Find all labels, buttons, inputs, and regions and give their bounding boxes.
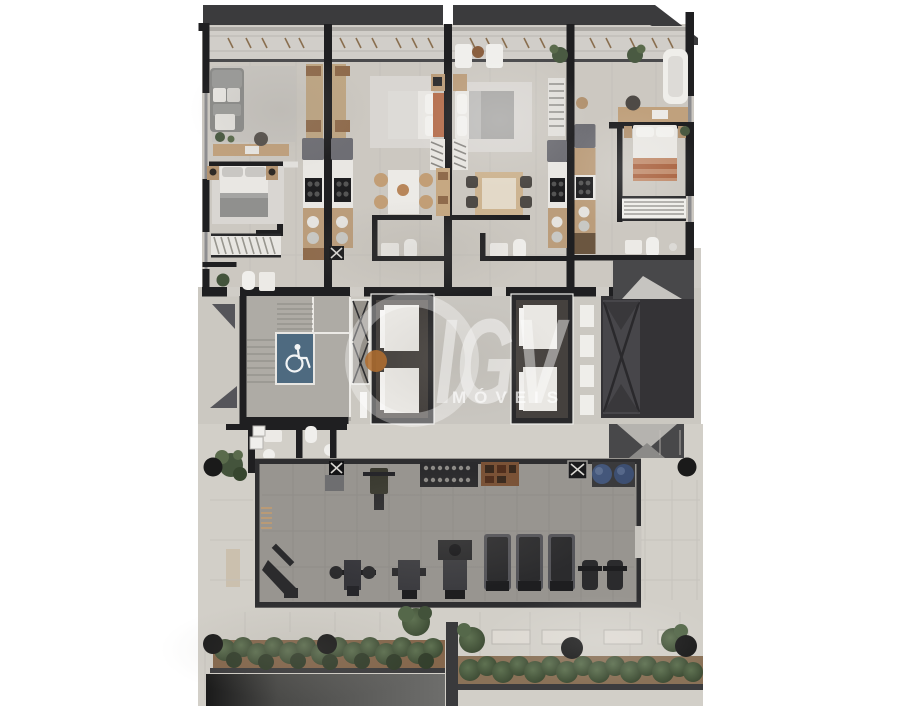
svg-text:IGV: IGV xyxy=(435,295,570,430)
svg-text:MÓVEIS: MÓVEIS xyxy=(452,388,566,407)
